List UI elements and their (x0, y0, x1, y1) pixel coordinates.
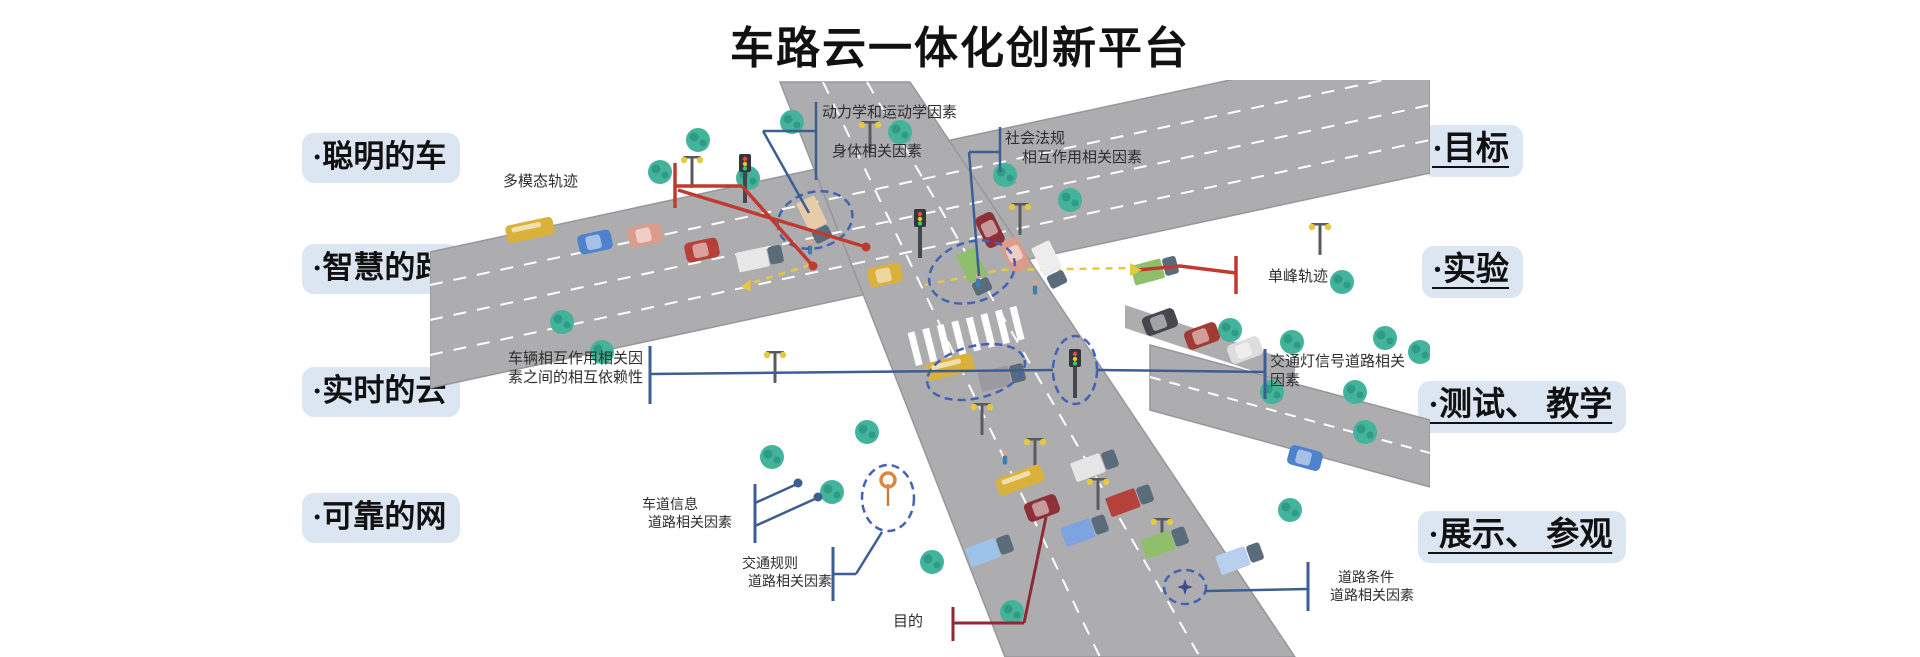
annotation-social-rules-line2: 相互作用相关因素 (1022, 148, 1142, 167)
annotation-interdependence-line1: 车辆相互作用相关因 (508, 350, 643, 367)
annotation-lane-info-line2: 道路相关因素 (648, 513, 732, 531)
annotation-road-condition-line2: 道路相关因素 (1330, 586, 1414, 604)
annotation-traffic-rules: 交通规则 道路相关因素 (742, 554, 832, 590)
annotation-body-factors: 身体相关因素 (832, 142, 922, 161)
label-test-teaching-text: ·测试、 教学 (1428, 387, 1612, 423)
annotation-social-rules-line1: 社会法规 (1005, 130, 1065, 147)
annotation-lane-info-line1: 车道信息 (642, 496, 698, 512)
label-exhibit-visit-text: ·展示、 参观 (1428, 517, 1612, 553)
annotation-unimodal-trajectory: 单峰轨迹 (1268, 267, 1328, 286)
annotation-multimodal-trajectory: 多模态轨迹 (503, 172, 578, 191)
slide-canvas: 车路云一体化创新平台 ·聪明的车 ·智慧的路 ·实时的云 ·可靠的网 ·目标 ·… (0, 0, 1920, 657)
annotation-interdependence: 车辆相互作用相关因 素之间的相互依赖性 (508, 349, 643, 387)
annotation-purpose-text: 目的 (893, 613, 923, 630)
label-realtime-cloud-text: ·实时的云 (312, 373, 446, 408)
annotation-lane-info: 车道信息 道路相关因素 (642, 495, 732, 531)
annotation-interdependence-line2: 素之间的相互依赖性 (508, 368, 643, 387)
annotation-social-rules: 社会法规 相互作用相关因素 (1005, 129, 1142, 167)
annotation-traffic-light-signal-line2: 因素 (1270, 371, 1405, 390)
annotation-multimodal-trajectory-text: 多模态轨迹 (503, 173, 578, 190)
annotation-traffic-rules-line1: 交通规则 (742, 555, 798, 571)
label-goal: ·目标 (1422, 125, 1523, 177)
annotation-body-factors-text: 身体相关因素 (832, 143, 922, 160)
label-smart-car-text: ·聪明的车 (312, 139, 446, 174)
label-test-teaching: ·测试、 教学 (1418, 381, 1626, 433)
label-exhibit-visit: ·展示、 参观 (1418, 511, 1626, 563)
label-experiment-text: ·实验 (1432, 252, 1509, 288)
label-experiment: ·实验 (1422, 246, 1523, 298)
annotation-traffic-light-signal-line1: 交通灯信号道路相关 (1270, 353, 1405, 370)
annotation-purpose: 目的 (893, 612, 923, 631)
label-reliable-network-text: ·可靠的网 (312, 499, 446, 534)
label-goal-text: ·目标 (1432, 131, 1509, 167)
page-title: 车路云一体化创新平台 (0, 12, 1920, 76)
annotation-traffic-rules-line2: 道路相关因素 (748, 572, 832, 590)
label-intelligent-road-text: ·智慧的路 (312, 250, 446, 285)
lollipop-sign (881, 473, 895, 506)
annotation-road-condition-line1: 道路条件 (1338, 569, 1394, 585)
annotation-unimodal-trajectory-text: 单峰轨迹 (1268, 268, 1328, 285)
annotation-road-condition: 道路条件 道路相关因素 (1338, 568, 1414, 604)
annotation-traffic-light-signal: 交通灯信号道路相关 因素 (1270, 352, 1405, 390)
annotation-dynamics: 动力学和运动学因素 (822, 103, 957, 122)
annotation-dynamics-text: 动力学和运动学因素 (822, 104, 957, 121)
